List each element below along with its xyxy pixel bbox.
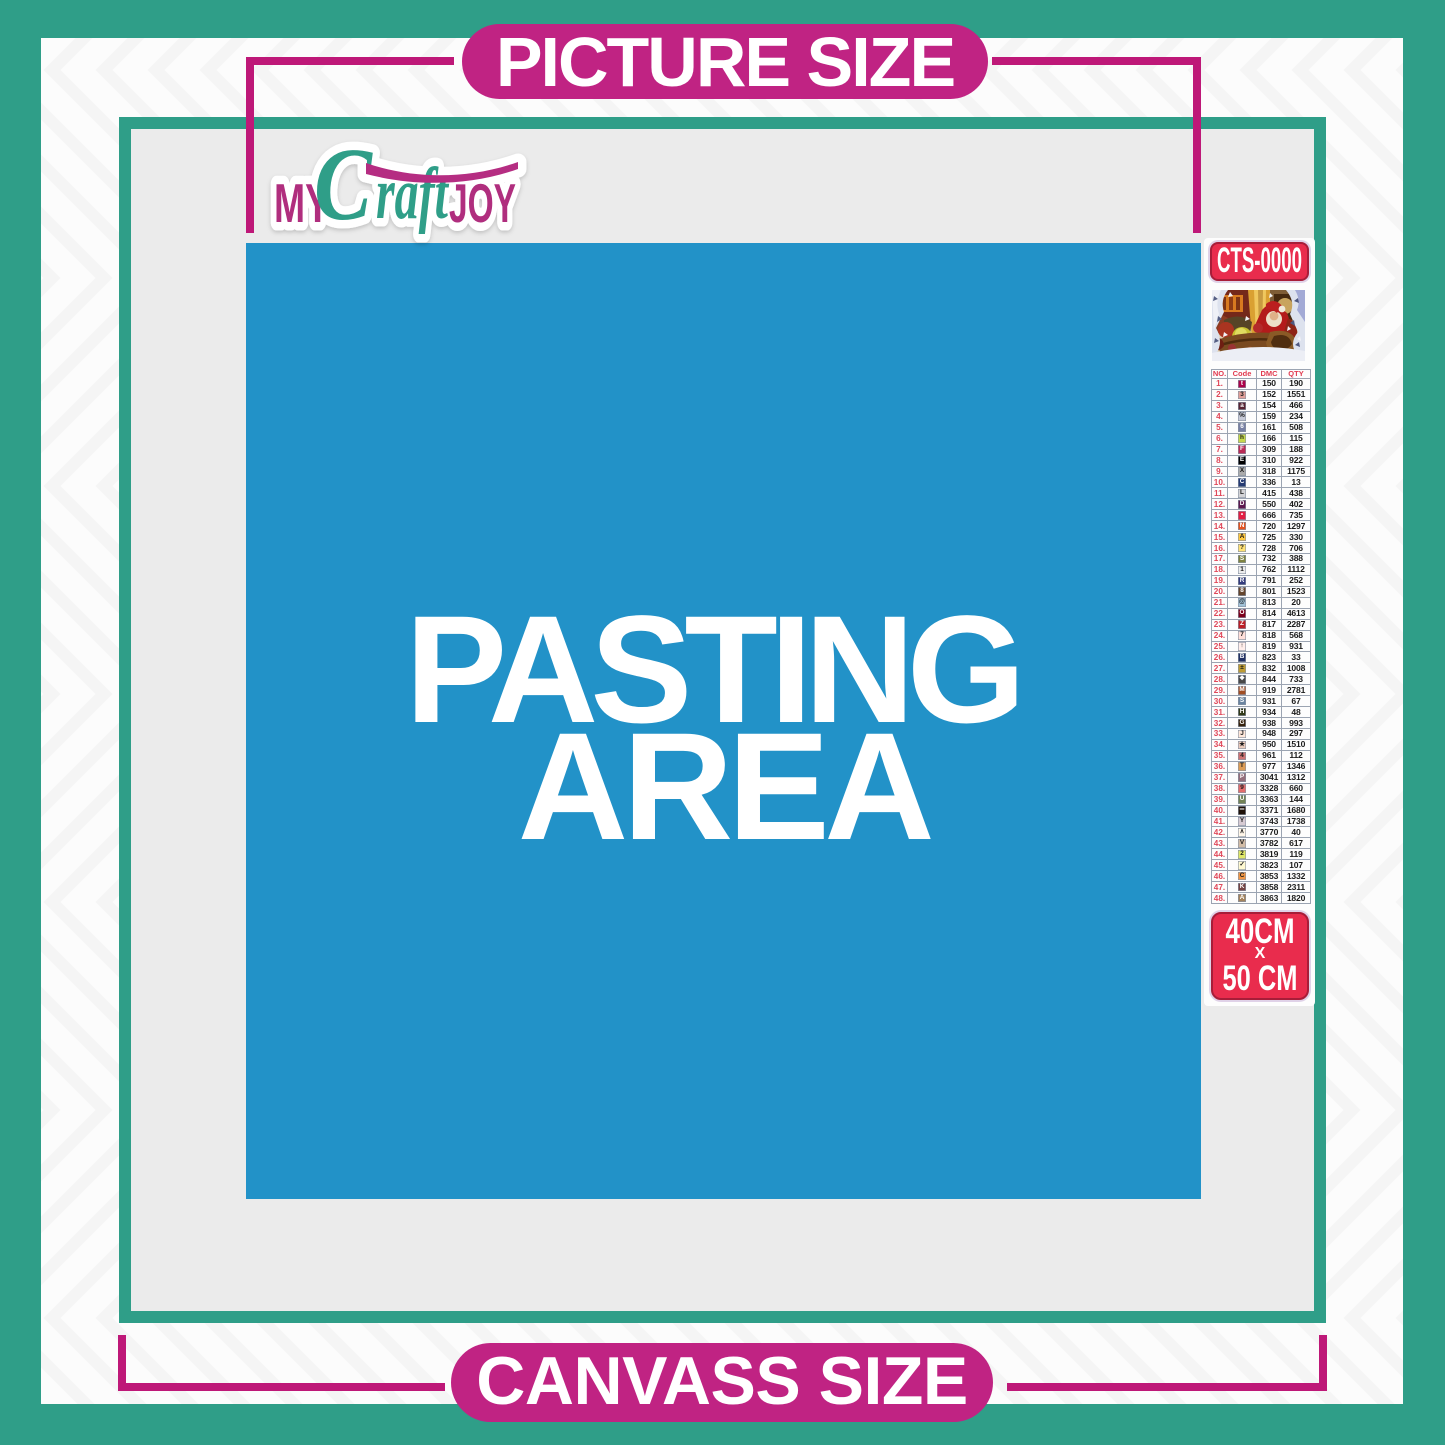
- svg-text:50 CM: 50 CM: [1223, 959, 1298, 998]
- svg-text:CTS-0000: CTS-0000: [1217, 242, 1302, 280]
